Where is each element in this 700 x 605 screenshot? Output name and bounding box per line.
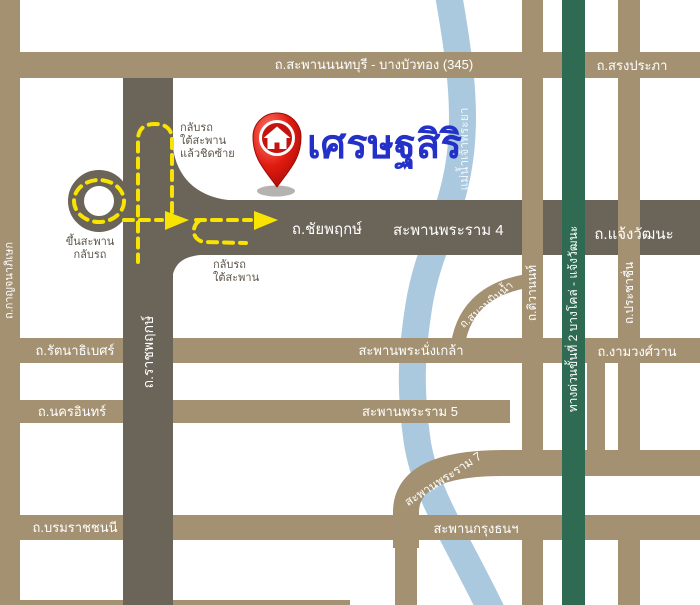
label-rama4-bridge: สะพานพระราม 4 [393,223,493,238]
label-rama5-bridge: สะพานพระราม 5 [360,405,460,418]
label-sanambinnam: ถ.สนามบินน้ำ [445,269,529,342]
road-tiwanon-upper [522,0,543,463]
road-tiwanon-lower [522,540,543,605]
note-up-bridge: ขึ้นสะพาน กลับรถ [60,236,120,262]
map-pin-icon [253,113,301,197]
junction-fillet-se [173,255,200,274]
route-loop [74,180,124,222]
label-nakhon-in: ถ.นครอินทร์ [22,405,122,418]
label-ngamwongwan: ถ.งามวงศ์วาน [587,345,687,358]
label-nonthaburi-bridge: ถ.สะพานนนทบุรี - บางบัวทอง (345) [274,58,474,71]
label-expressway: ทางด่วนขั้นที่ 2 บางโคล่ - แจ้งวัฒนะ [567,169,579,469]
label-phranangklao-bridge: สะพานพระนั่งเกล้า [351,344,471,357]
label-borommaratchachonnani: ถ.บรมราชชนนี [25,521,125,534]
label-ratchaphruek: ถ.ราชพฤกษ์ [141,282,155,422]
location-map: ถ.สะพานนนทบุรี - บางบัวทอง (345) ถ.สรงปร… [0,0,700,605]
label-prachachuen: ถ.ประชาชื่น [623,248,635,338]
label-kanchanaphisek: ถ.กาญจนาภิเษก [5,216,16,346]
brand-name: เศรษฐสิริ [307,125,462,165]
label-krungthon-bridge: สะพานกรุงธนฯ [426,522,526,535]
house-icon [264,127,291,150]
note-uturn-under: กลับรถ ใต้สะพาน [213,259,259,285]
label-song-prapha: ถ.สรงประภา [582,59,682,72]
note-uturn-left: กลับรถ ใต้สะพาน แล้วชิดซ้าย [180,122,235,161]
label-tiwanon: ถ.ติวานนท์ [526,248,538,338]
road-bottom-sliver [0,600,350,605]
road-rama7-south-stub [395,540,417,605]
label-chaengwattana: ถ.แจ้งวัฒนะ [584,227,684,242]
label-rama7-bridge: สะพานพระราม 7 [394,444,493,514]
road-prachachuen-lower [618,540,640,605]
uturn-loop-road [76,178,122,224]
label-rattanathibet: ถ.รัตนาธิเบศร์ [25,344,125,357]
label-chaiyaphruek: ถ.ชัยพฤกษ์ [277,222,377,237]
